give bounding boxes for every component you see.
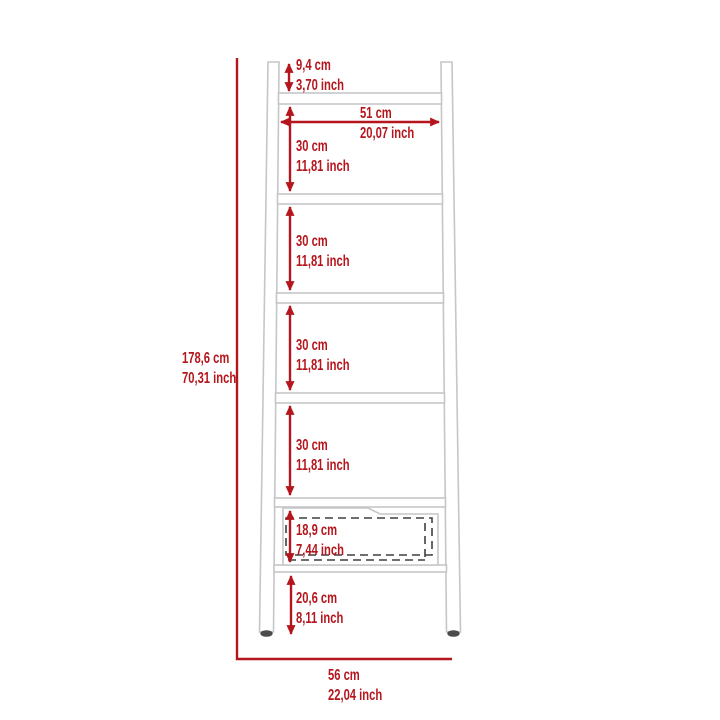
dim-label-section-1: 30 cm 11,81 inch	[296, 137, 350, 177]
dim-label-top-gap: 9,4 cm 3,70 inch	[296, 56, 344, 96]
dim-label-section-3: 30 cm 11,81 inch	[296, 336, 350, 376]
dim-label-bottom-gap: 20,6 cm 8,11 inch	[296, 589, 343, 629]
ladder-shelf-dimension-diagram: 9,4 cm 3,70 inch 51 cm 20,07 inch 30 cm …	[0, 0, 720, 720]
metric-value: 56 cm	[328, 666, 382, 686]
dim-label-total-width: 56 cm 22,04 inch	[328, 666, 382, 706]
imperial-value: 8,11 inch	[296, 609, 343, 629]
dim-label-total-height: 178,6 cm 70,31 inch	[182, 349, 236, 389]
dim-label-shelf-width: 51 cm 20,07 inch	[360, 104, 414, 144]
imperial-value: 11,81 inch	[296, 252, 350, 272]
shelf-4	[276, 393, 445, 403]
shelf-3	[277, 293, 444, 303]
metric-value: 30 cm	[296, 232, 350, 252]
metric-value: 51 cm	[360, 104, 414, 124]
imperial-value: 11,81 inch	[296, 157, 350, 177]
metric-value: 178,6 cm	[182, 349, 236, 369]
shelf-6	[274, 565, 447, 572]
shelf-2	[278, 194, 443, 204]
imperial-value: 22,04 inch	[328, 686, 382, 706]
right-foot	[447, 630, 459, 637]
imperial-value: 20,07 inch	[360, 124, 414, 144]
dim-label-section-2: 30 cm 11,81 inch	[296, 232, 350, 272]
metric-value: 20,6 cm	[296, 589, 343, 609]
imperial-value: 70,31 inch	[182, 369, 236, 389]
metric-value: 30 cm	[296, 336, 350, 356]
metric-value: 18,9 cm	[296, 521, 344, 541]
left-foot	[260, 630, 272, 637]
imperial-value: 11,81 inch	[296, 356, 350, 376]
shelf-5	[275, 498, 446, 507]
metric-value: 9,4 cm	[296, 56, 344, 76]
imperial-value: 11,81 inch	[296, 456, 350, 476]
left-rail	[260, 62, 280, 632]
dim-label-section-4: 30 cm 11,81 inch	[296, 436, 350, 476]
dim-label-drawer-height: 18,9 cm 7,44 inch	[296, 521, 344, 561]
right-rail	[441, 62, 461, 632]
imperial-value: 3,70 inch	[296, 76, 344, 96]
imperial-value: 7,44 inch	[296, 541, 344, 561]
metric-value: 30 cm	[296, 436, 350, 456]
metric-value: 30 cm	[296, 137, 350, 157]
